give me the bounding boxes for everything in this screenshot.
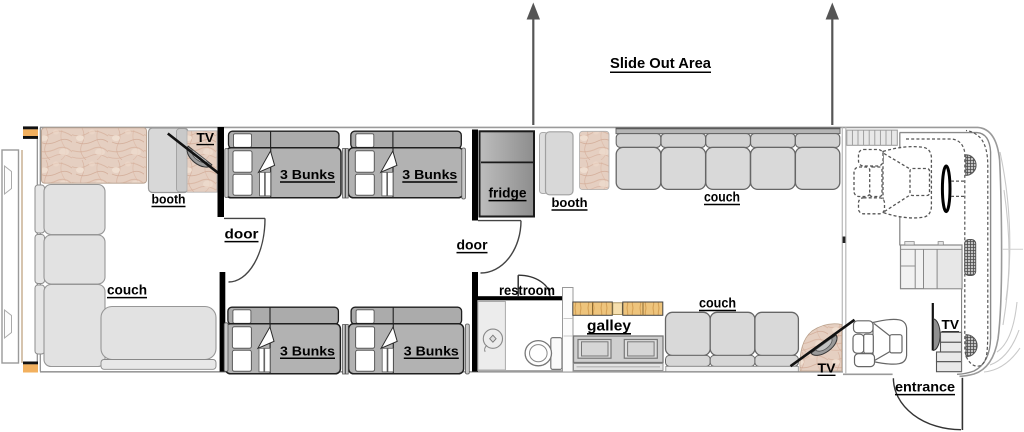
svg-text:fridge: fridge [489, 185, 527, 201]
svg-text:couch: couch [107, 282, 147, 298]
svg-text:3 Bunks: 3 Bunks [402, 167, 457, 182]
svg-text:TV: TV [197, 130, 215, 145]
svg-text:3 Bunks: 3 Bunks [280, 167, 335, 182]
svg-text:3 Bunks: 3 Bunks [280, 343, 335, 358]
svg-text:door: door [225, 226, 260, 242]
svg-text:entrance: entrance [895, 380, 956, 395]
svg-text:Slide Out Area: Slide Out Area [610, 55, 712, 72]
svg-text:couch: couch [704, 190, 740, 205]
svg-text:TV: TV [818, 361, 836, 376]
svg-text:booth: booth [152, 192, 186, 207]
svg-text:couch: couch [699, 296, 736, 311]
svg-text:booth: booth [552, 195, 588, 210]
svg-text:3 Bunks: 3 Bunks [404, 343, 459, 358]
svg-text:restroom: restroom [499, 283, 555, 298]
svg-text:galley: galley [587, 318, 632, 335]
svg-text:TV: TV [942, 317, 960, 332]
svg-text:door: door [457, 237, 489, 253]
